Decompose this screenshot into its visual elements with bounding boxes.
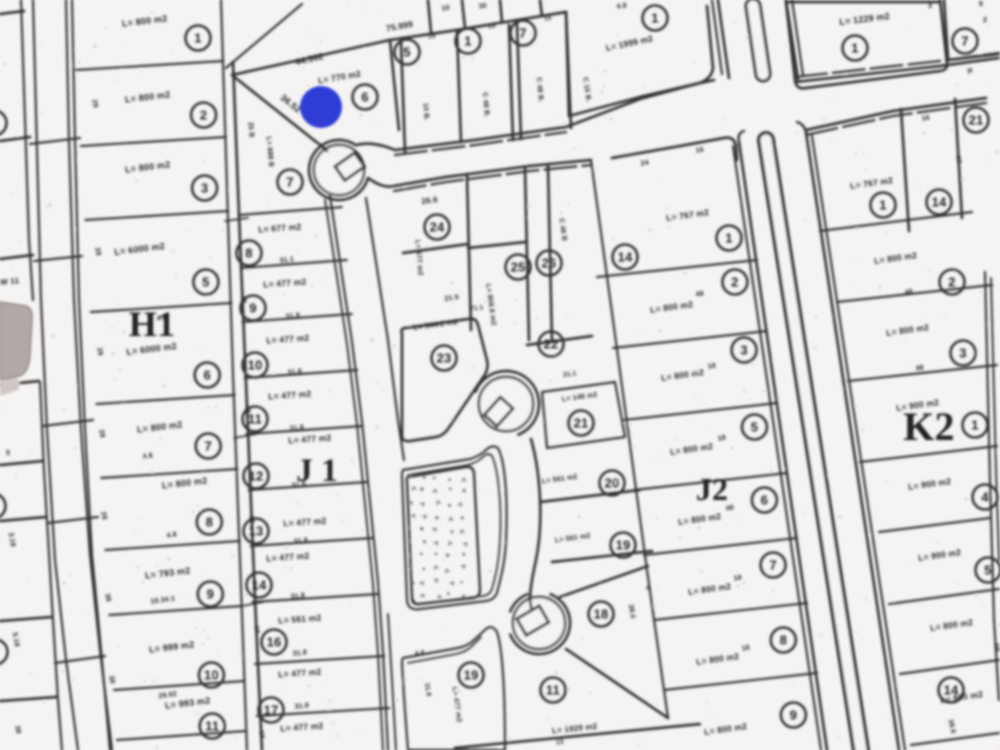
svg-text:17: 17	[264, 703, 279, 718]
svg-text:14: 14	[618, 250, 633, 265]
svg-text:1: 1	[194, 31, 201, 46]
svg-text:4.8: 4.8	[415, 649, 426, 657]
svg-text:3: 3	[740, 343, 747, 358]
svg-text:8: 8	[780, 633, 787, 648]
svg-text:11: 11	[205, 719, 219, 734]
svg-text:8: 8	[245, 246, 252, 261]
svg-text:18: 18	[733, 574, 742, 582]
svg-text:H1: H1	[129, 304, 175, 344]
svg-text:38: 38	[103, 593, 111, 602]
svg-text:19: 19	[464, 668, 479, 683]
svg-text:6: 6	[761, 493, 768, 508]
svg-text:3: 3	[928, 3, 932, 10]
svg-text:28: 28	[99, 511, 107, 520]
svg-text:38: 38	[13, 725, 21, 734]
svg-text:1: 1	[879, 198, 886, 213]
svg-text:9: 9	[249, 301, 256, 316]
svg-text:6: 6	[979, 1, 983, 8]
svg-text:11: 11	[248, 412, 262, 427]
svg-text:25: 25	[511, 260, 526, 275]
svg-text:16: 16	[695, 146, 704, 154]
svg-text:11: 11	[546, 683, 560, 698]
svg-text:21: 21	[969, 113, 984, 128]
svg-text:18: 18	[594, 607, 609, 622]
svg-text:48: 48	[915, 364, 924, 372]
svg-text:8: 8	[206, 515, 213, 530]
svg-text:2: 2	[731, 275, 738, 290]
svg-text:7: 7	[961, 34, 968, 49]
svg-text:9: 9	[207, 587, 214, 602]
svg-text:18: 18	[257, 730, 265, 739]
svg-text:28: 28	[97, 429, 105, 438]
svg-text:7: 7	[769, 558, 776, 573]
svg-text:4.8: 4.8	[156, 314, 167, 322]
svg-text:13: 13	[249, 524, 264, 539]
svg-text:1: 1	[971, 418, 978, 433]
svg-text:5: 5	[6, 450, 10, 457]
svg-text:10: 10	[204, 668, 219, 683]
svg-text:12: 12	[249, 469, 264, 484]
svg-text:19: 19	[616, 538, 631, 553]
svg-text:38: 38	[107, 675, 115, 684]
svg-text:15: 15	[428, 32, 437, 40]
svg-text:5: 5	[984, 563, 991, 578]
svg-text:24: 24	[640, 159, 649, 167]
svg-text:4: 4	[981, 490, 989, 505]
svg-text:18: 18	[239, 295, 247, 304]
svg-text:J2: J2	[696, 471, 728, 507]
svg-text:15: 15	[544, 14, 553, 22]
svg-text:26: 26	[542, 256, 557, 271]
svg-text:B.: B.	[965, 68, 973, 76]
svg-text:1: 1	[851, 41, 858, 56]
svg-text:5: 5	[751, 420, 758, 435]
svg-text:4.8: 4.8	[166, 531, 177, 539]
svg-text:28: 28	[90, 99, 98, 108]
svg-text:6: 6	[361, 90, 368, 105]
svg-text:30: 30	[478, 2, 487, 10]
svg-text:16: 16	[921, 114, 930, 122]
svg-text:4.8: 4.8	[616, 2, 627, 10]
svg-text:1: 1	[725, 231, 732, 246]
svg-text:1: 1	[651, 11, 658, 26]
svg-text:18: 18	[741, 644, 750, 652]
svg-text:4: 4	[646, 585, 650, 592]
svg-text:2: 2	[200, 108, 207, 123]
svg-text:16: 16	[267, 635, 282, 650]
svg-text:48: 48	[904, 288, 913, 296]
svg-text:18: 18	[717, 434, 726, 442]
svg-text:4.8: 4.8	[142, 452, 153, 460]
svg-text:9: 9	[790, 708, 797, 723]
svg-text:5: 5	[403, 45, 410, 60]
svg-text:15: 15	[488, 22, 497, 30]
svg-text:1: 1	[464, 34, 471, 49]
svg-text:28: 28	[93, 247, 101, 256]
svg-text:18: 18	[247, 515, 255, 524]
svg-text:2: 2	[948, 275, 955, 290]
svg-text:7: 7	[204, 439, 211, 454]
svg-text:5: 5	[202, 275, 209, 290]
svg-text:48: 48	[695, 290, 704, 298]
svg-text:22: 22	[544, 337, 559, 352]
svg-text:2: 2	[983, 17, 987, 24]
svg-text:20: 20	[605, 476, 620, 491]
svg-text:14: 14	[932, 195, 947, 210]
svg-text:14: 14	[252, 578, 267, 593]
svg-text:K2: K2	[903, 404, 955, 449]
svg-text:25 B: 25 B	[246, 122, 254, 138]
svg-text:7: 7	[286, 175, 293, 190]
svg-text:13: 13	[556, 739, 565, 747]
svg-text:3: 3	[201, 181, 208, 196]
svg-text:12: 12	[954, 155, 962, 164]
svg-text:24: 24	[430, 220, 445, 235]
svg-text:10: 10	[248, 358, 263, 373]
svg-text:7: 7	[519, 26, 526, 41]
svg-text:6: 6	[203, 368, 210, 383]
svg-text:21: 21	[574, 416, 589, 431]
svg-text:18: 18	[707, 362, 716, 370]
svg-text:48: 48	[725, 504, 734, 512]
svg-text:28: 28	[95, 347, 103, 356]
svg-text:10: 10	[441, 4, 450, 12]
svg-text:3: 3	[959, 346, 966, 361]
svg-text:23: 23	[437, 351, 452, 366]
svg-text:18: 18	[243, 405, 251, 414]
svg-text:18: 18	[252, 625, 260, 634]
